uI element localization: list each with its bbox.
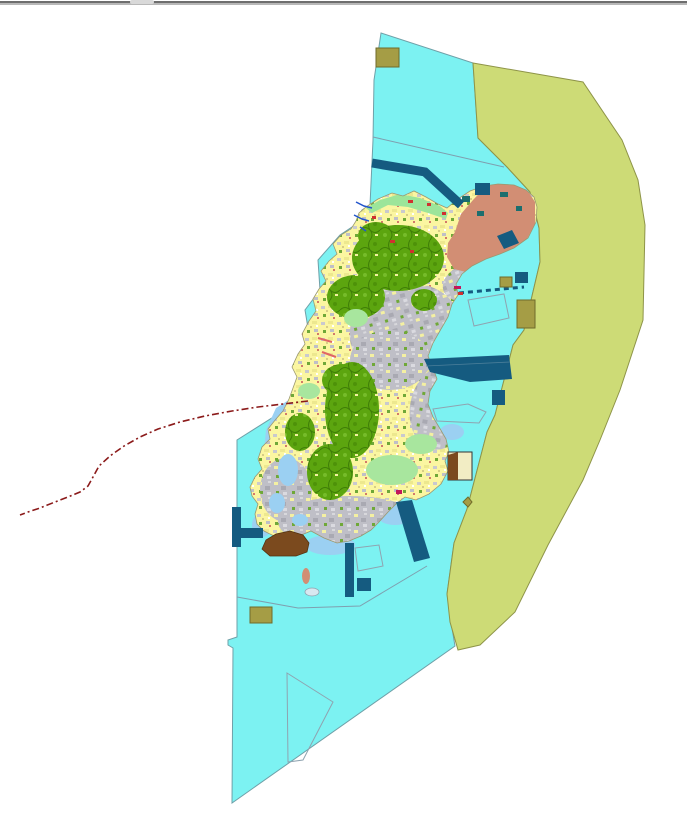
map-viewport [0,0,687,821]
compound-brown-wing [448,452,458,480]
red-accent [442,212,446,215]
harbor-block-south [357,578,371,591]
islet-pale [305,588,319,596]
top-bar-grip-tab[interactable] [130,0,154,4]
teal-parcel [516,206,522,211]
forest-north-small [358,222,394,250]
khaki-site-east-small [500,277,512,287]
teal-parcel [500,192,508,197]
top-bar-dark-line [0,1,687,3]
harbor-marker-south [396,490,402,494]
lagoon [278,454,298,486]
khaki-site-east-large [517,300,535,328]
forest-southwest [307,444,353,500]
meadow-west [298,383,320,399]
red-accent [410,250,414,253]
forest-mid-small [322,364,362,396]
forest-west-small [285,413,315,451]
khaki-site-southwest [250,607,272,623]
red-accent [390,240,395,243]
harbor-block-east [515,272,528,283]
harbor-block-southeast [492,390,505,405]
top-bar-light-line [0,3,687,5]
harbor-block-northeast [475,183,490,195]
islet-salmon [302,568,310,584]
lagoon [269,493,285,513]
harbor-marker-red [458,292,463,295]
meadow-east [405,434,437,454]
map-canvas[interactable] [0,0,687,821]
red-accent [427,203,431,206]
meadow-center [344,309,368,327]
harbor-marker-magenta [454,286,461,289]
teal-parcel [477,211,484,216]
meadow-south [366,455,418,485]
red-accent [372,216,376,219]
lagoon [292,514,308,526]
red-accent [408,200,413,203]
pier-south-vertical [345,543,354,597]
forest-east-small [411,289,437,311]
brown-cream-compound [448,452,472,480]
khaki-site-north [376,48,399,67]
